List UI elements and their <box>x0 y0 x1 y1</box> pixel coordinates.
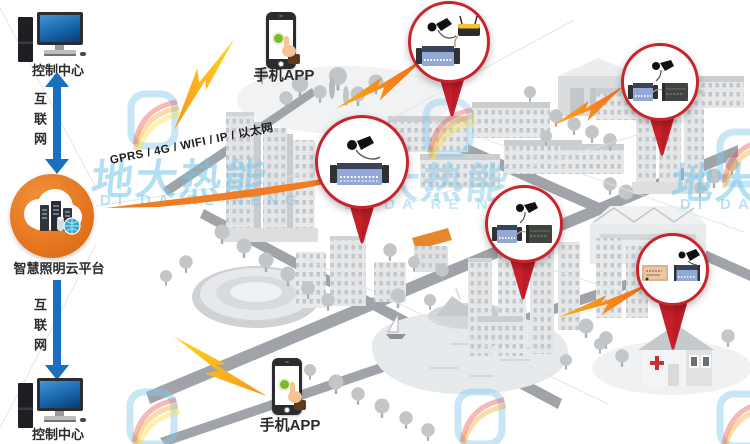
pc-mouse-icon <box>80 418 86 422</box>
pc-monitor-icon <box>37 12 83 45</box>
pc-monitor-icon <box>37 378 83 411</box>
device-callout-zone-3 <box>315 115 409 209</box>
pc-tower-icon <box>18 17 33 62</box>
control-center-computer-top <box>18 12 86 66</box>
cloud-platform-label: 智慧照明云平台 <box>0 258 118 277</box>
mobile-app-label-bottom: 手机APP <box>250 414 330 435</box>
device-callout-zone-1 <box>408 1 490 83</box>
gsm-antenna-icon <box>516 204 524 212</box>
pc-tower-icon <box>18 383 33 428</box>
internet-label-bottom: 互联网 <box>30 298 49 358</box>
internet-label-top: 互联网 <box>30 92 49 152</box>
tapping-hand-icon <box>284 380 308 410</box>
gsm-antenna-icon <box>347 140 357 150</box>
gsm-antenna-icon <box>652 62 660 70</box>
device-callout-zone-4 <box>485 185 563 263</box>
tapping-hand-icon <box>278 34 302 64</box>
mobile-app-label-top: 手机APP <box>244 64 324 85</box>
pc-mouse-icon <box>80 52 86 56</box>
gsm-antenna-icon <box>428 23 437 32</box>
control-center-label-bottom: 控制中心 <box>8 424 108 443</box>
location-pin <box>658 300 688 352</box>
power-module-icon <box>526 225 552 243</box>
device-callout-zone-5 <box>636 233 709 306</box>
device-callout-zone-2 <box>621 43 699 121</box>
smart-lighting-architecture-diagram: 地大热能 DI DA RE NENG 地大热能 DI DA RE NENG 地大… <box>0 0 750 444</box>
gsm-antenna-icon <box>678 251 685 258</box>
power-module-icon <box>662 83 688 101</box>
cloud-platform-icon <box>10 174 94 258</box>
